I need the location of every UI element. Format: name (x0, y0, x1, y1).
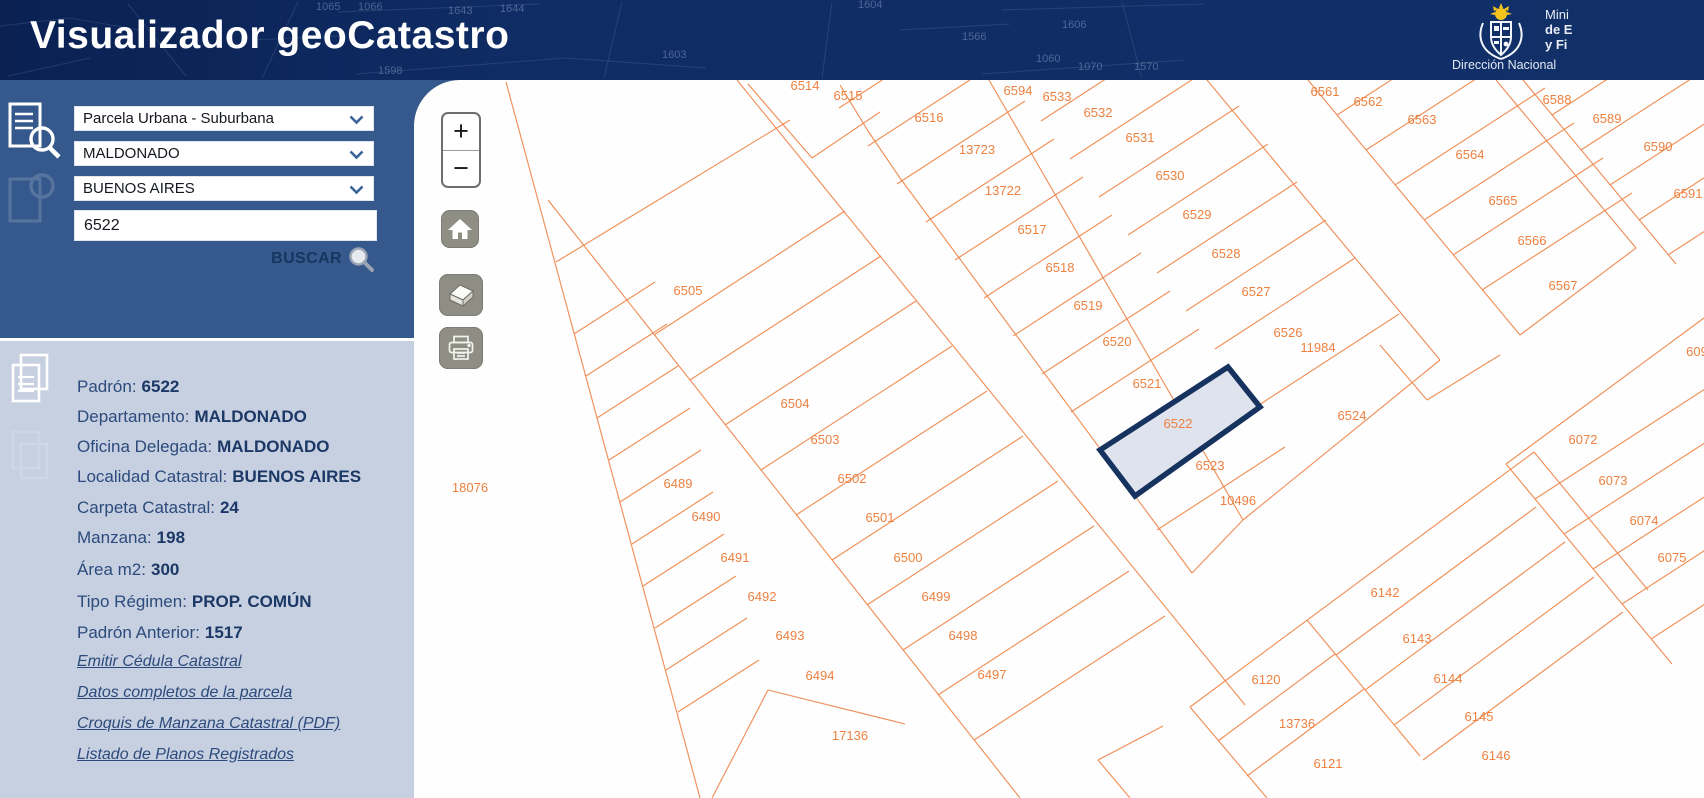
selected-parcel[interactable] (1100, 367, 1260, 496)
cadastral-map[interactable]: 1807617136651465156516137231372265176518… (414, 80, 1704, 798)
parcel-label: 6493 (776, 628, 805, 643)
parcel-boundary-line (597, 366, 678, 418)
parcel-label: 6505 (674, 283, 703, 298)
parcel-boundary-line (678, 660, 759, 712)
parcel-label: 6567 (1549, 278, 1578, 293)
parcel-boundary-line (867, 481, 1058, 605)
parcel-boundary-line (1207, 80, 1440, 360)
parcel-label: 6146 (1482, 748, 1511, 763)
parcel-label: 6500 (894, 550, 923, 565)
search-panel: Parcela Urbana - Suburbana MALDONADO BUE… (0, 80, 414, 338)
svg-text:1070: 1070 (1078, 61, 1102, 73)
chevron-down-icon (349, 185, 364, 195)
parcel-label: 6533 (1043, 89, 1072, 104)
parcel-label: 6531 (1126, 130, 1155, 145)
parcel-boundary-line (1506, 464, 1672, 664)
parcel-label: 6497 (978, 667, 1007, 682)
parcel-boundary-line (832, 436, 1023, 560)
buscar-button-label: BUSCAR (271, 250, 342, 268)
parcel-label: 6590 (1644, 139, 1673, 154)
parcel-boundary-line (643, 534, 724, 586)
parcel-boundary-line (812, 112, 880, 158)
parcel-boundary-line (748, 84, 812, 158)
parcel-label: 18076 (452, 480, 488, 495)
parcel-boundary-line (1639, 123, 1704, 220)
parcel-label: 6490 (692, 509, 721, 524)
parcel-boundary-line (1099, 106, 1239, 197)
parcel-boundary-line (984, 215, 1112, 298)
parcel-boundary-line (1190, 707, 1267, 798)
parcel-boundary-line (868, 131, 900, 178)
select-parcel-type[interactable]: Parcela Urbana - Suburbana (74, 106, 374, 131)
documents-stack-icon (5, 353, 63, 418)
parcel-boundary-line (1651, 529, 1704, 639)
header-bar: 1643164415981603160416061060107015701065… (0, 0, 1704, 80)
info-field-padron: Padrón:6522 (77, 377, 179, 397)
select-parcel-type-value: Parcela Urbana - Suburbana (83, 110, 274, 127)
svg-text:1566: 1566 (962, 31, 986, 43)
parcel-label: 13736 (1279, 716, 1315, 731)
parcel-label: 6562 (1354, 94, 1383, 109)
documents-stack-icon-reflection (5, 415, 63, 480)
parcel-boundary-line (1336, 507, 1536, 655)
parcel-label: 6591 (1674, 186, 1703, 201)
parcel-boundary-line (574, 282, 655, 334)
parcel-label: 6515 (834, 88, 863, 103)
info-field-localidad: Localidad Catastral:BUENOS AIRES (77, 467, 361, 487)
home-icon (447, 217, 473, 241)
parcel-boundary-line (1520, 248, 1636, 335)
clear-selection-button[interactable] (439, 274, 483, 316)
eraser-icon (447, 282, 475, 308)
padron-search-input[interactable] (74, 210, 377, 241)
parcel-boundary-line (690, 256, 881, 380)
info-field-oficina: Oficina Delegada:MALDONADO (77, 437, 330, 457)
parcel-boundary-line (768, 690, 905, 724)
parcel-boundary-line (1098, 726, 1163, 760)
svg-text:1604: 1604 (858, 0, 882, 11)
parcel-label: 6504 (781, 396, 810, 411)
parcel-label: 6520 (1103, 334, 1132, 349)
parcel-boundary-line (1506, 318, 1704, 464)
parcel-label: 6529 (1183, 207, 1212, 222)
parcel-label: 6145 (1465, 709, 1494, 724)
parcel-label: 6517 (1018, 222, 1047, 237)
parcel-label: 6499 (922, 589, 951, 604)
parcel-label: 6073 (1599, 473, 1628, 488)
parcel-boundary-line (1247, 689, 1364, 776)
parcel-boundary-line (655, 576, 736, 628)
parcel-label: 6144 (1434, 671, 1463, 686)
parcel-label: 6516 (915, 110, 944, 125)
direccion-nacional-text: Dirección Nacional (1452, 58, 1556, 72)
selected-parcel-label: 6522 (1164, 416, 1193, 431)
document-search-icon-reflection (4, 160, 62, 223)
svg-text:1598: 1598 (378, 65, 402, 77)
link-croquis-manzana[interactable]: Croquis de Manzana Catastral (PDF) (77, 715, 340, 735)
parcel-boundary-line (1668, 158, 1704, 255)
chevron-down-icon (349, 115, 364, 125)
parcel-label: 6142 (1371, 585, 1400, 600)
parcel-label: 6074 (1630, 513, 1659, 528)
parcel-label: 6532 (1084, 105, 1113, 120)
parcel-label: 6502 (838, 471, 867, 486)
parcel-boundary-line (1042, 291, 1170, 374)
parcel-label: 609 (1686, 344, 1704, 359)
parcel-label: 13722 (985, 183, 1021, 198)
svg-text:1060: 1060 (1036, 53, 1060, 65)
parcel-label: 10496 (1220, 493, 1256, 508)
parcel-boundary-line (609, 408, 690, 460)
parcel-label: 6075 (1658, 550, 1687, 565)
parcel-label: 11984 (1300, 340, 1335, 355)
parcel-boundary-line (654, 211, 845, 335)
parcel-label: 6494 (806, 668, 835, 683)
parcel-boundary-line (1013, 253, 1141, 336)
svg-text:1065: 1065 (316, 1, 340, 13)
parcel-label: 6564 (1456, 147, 1485, 162)
select-locality-value: BUENOS AIRES (83, 180, 195, 197)
info-field-manzana: Manzana:198 (77, 528, 185, 548)
magnifier-icon (348, 246, 374, 272)
document-search-icon (4, 102, 62, 165)
parcel-boundary-line (725, 301, 916, 425)
zoom-control: + − (441, 112, 481, 188)
parcel-label: 6503 (811, 432, 840, 447)
parcel-label: 6072 (1569, 432, 1598, 447)
parcel-label: 6566 (1518, 233, 1547, 248)
zoom-in-button[interactable]: + (443, 114, 479, 151)
chevron-down-icon (349, 150, 364, 160)
app-window: 1643164415981603160416061060107015701065… (0, 0, 1704, 798)
zoom-out-button[interactable]: − (443, 151, 479, 187)
select-department-value: MALDONADO (83, 145, 180, 162)
parcel-info-panel: Padrón:6522 Departamento:MALDONADO Ofici… (0, 341, 414, 798)
select-department[interactable]: MALDONADO (74, 141, 374, 166)
print-map-button[interactable] (439, 327, 483, 369)
svg-text:1603: 1603 (662, 49, 686, 61)
parcel-boundary-line (1423, 612, 1623, 760)
page-title: Visualizador geoCatastro (30, 14, 509, 58)
parcel-boundary-line (1622, 494, 1704, 604)
info-field-padron-anterior: Padrón Anterior:1517 (77, 623, 243, 643)
parcel-boundary-line (796, 391, 987, 515)
parcel-label: 6519 (1074, 298, 1103, 313)
parcel-label: 6530 (1156, 168, 1185, 183)
parcel-label: 6498 (949, 628, 978, 643)
parcel-label: 6518 (1046, 260, 1075, 275)
parcel-label: 6526 (1274, 325, 1303, 340)
link-listado-planos[interactable]: Listado de Planos Registrados (77, 746, 294, 766)
parcel-label: 6501 (866, 510, 895, 525)
parcel-boundary-line (1218, 654, 1335, 741)
parcel-label: 6491 (721, 550, 750, 565)
ministry-logo-text: Mini de E y Fi (1545, 7, 1572, 52)
parcel-label: 6588 (1543, 92, 1572, 107)
buscar-button[interactable]: BUSCAR (271, 246, 374, 272)
parcel-label: 6121 (1314, 756, 1343, 771)
parcel-label: 6594 (1004, 83, 1033, 98)
parcel-boundary-line (1552, 80, 1702, 115)
parcel-label: 6524 (1338, 408, 1367, 423)
parcel-label: 6143 (1403, 631, 1432, 646)
home-extent-button[interactable] (441, 210, 479, 248)
parcel-boundary-line (586, 324, 667, 376)
parcel-boundary-line (1365, 542, 1565, 690)
info-field-departamento: Departamento:MALDONADO (77, 407, 307, 427)
parcel-label: 6528 (1212, 246, 1241, 261)
parcel-boundary-line (1192, 520, 1243, 573)
parcel-boundary-line (712, 690, 768, 798)
parcel-label: 17136 (832, 728, 868, 743)
parcel-label: 6565 (1489, 193, 1518, 208)
select-locality[interactable]: BUENOS AIRES (74, 176, 374, 201)
svg-text:1570: 1570 (1134, 61, 1158, 73)
info-field-carpeta: Carpeta Catastral:24 (77, 498, 239, 518)
parcel-label: 6120 (1252, 672, 1281, 687)
map-area: 1807617136651465156516137231372265176518… (414, 80, 1704, 798)
info-field-area: Área m2:300 (77, 560, 179, 580)
svg-text:1606: 1606 (1062, 19, 1086, 31)
parcel-boundary-line (666, 618, 747, 670)
parcel-boundary-line (1610, 88, 1704, 185)
parcel-boundary-line (556, 120, 790, 262)
parcel-boundary-line (1243, 360, 1440, 520)
parcel-boundary-line (1098, 760, 1130, 798)
parcel-label: 6523 (1196, 458, 1225, 473)
parcel-boundary-line (506, 82, 700, 798)
printer-icon (447, 335, 475, 361)
parcel-label: 6514 (791, 80, 820, 93)
parcel-boundary-line (1380, 345, 1427, 400)
parcel-label: 13723 (959, 142, 995, 157)
info-field-regimen: Tipo Régimen:PROP. COMÚN (77, 592, 312, 612)
parcel-boundary-line (1395, 88, 1545, 185)
parcel-label: 6492 (748, 589, 777, 604)
parcel-boundary-line (1366, 80, 1516, 150)
parcel-label: 6527 (1242, 284, 1271, 299)
parcel-boundary-line (903, 526, 1094, 650)
parcel-boundary-line (1394, 577, 1594, 725)
link-datos-completos[interactable]: Datos completos de la parcela (77, 684, 292, 704)
parcel-label: 6561 (1311, 84, 1340, 99)
parcel-label: 6489 (664, 476, 693, 491)
parcel-label: 6563 (1408, 112, 1437, 127)
parcel-label: 6521 (1133, 376, 1162, 391)
parcel-boundary-line (1190, 452, 1534, 707)
svg-text:1066: 1066 (358, 1, 382, 13)
parcel-label: 6589 (1593, 111, 1622, 126)
link-emitir-cedula[interactable]: Emitir Cédula Catastral (77, 653, 242, 673)
